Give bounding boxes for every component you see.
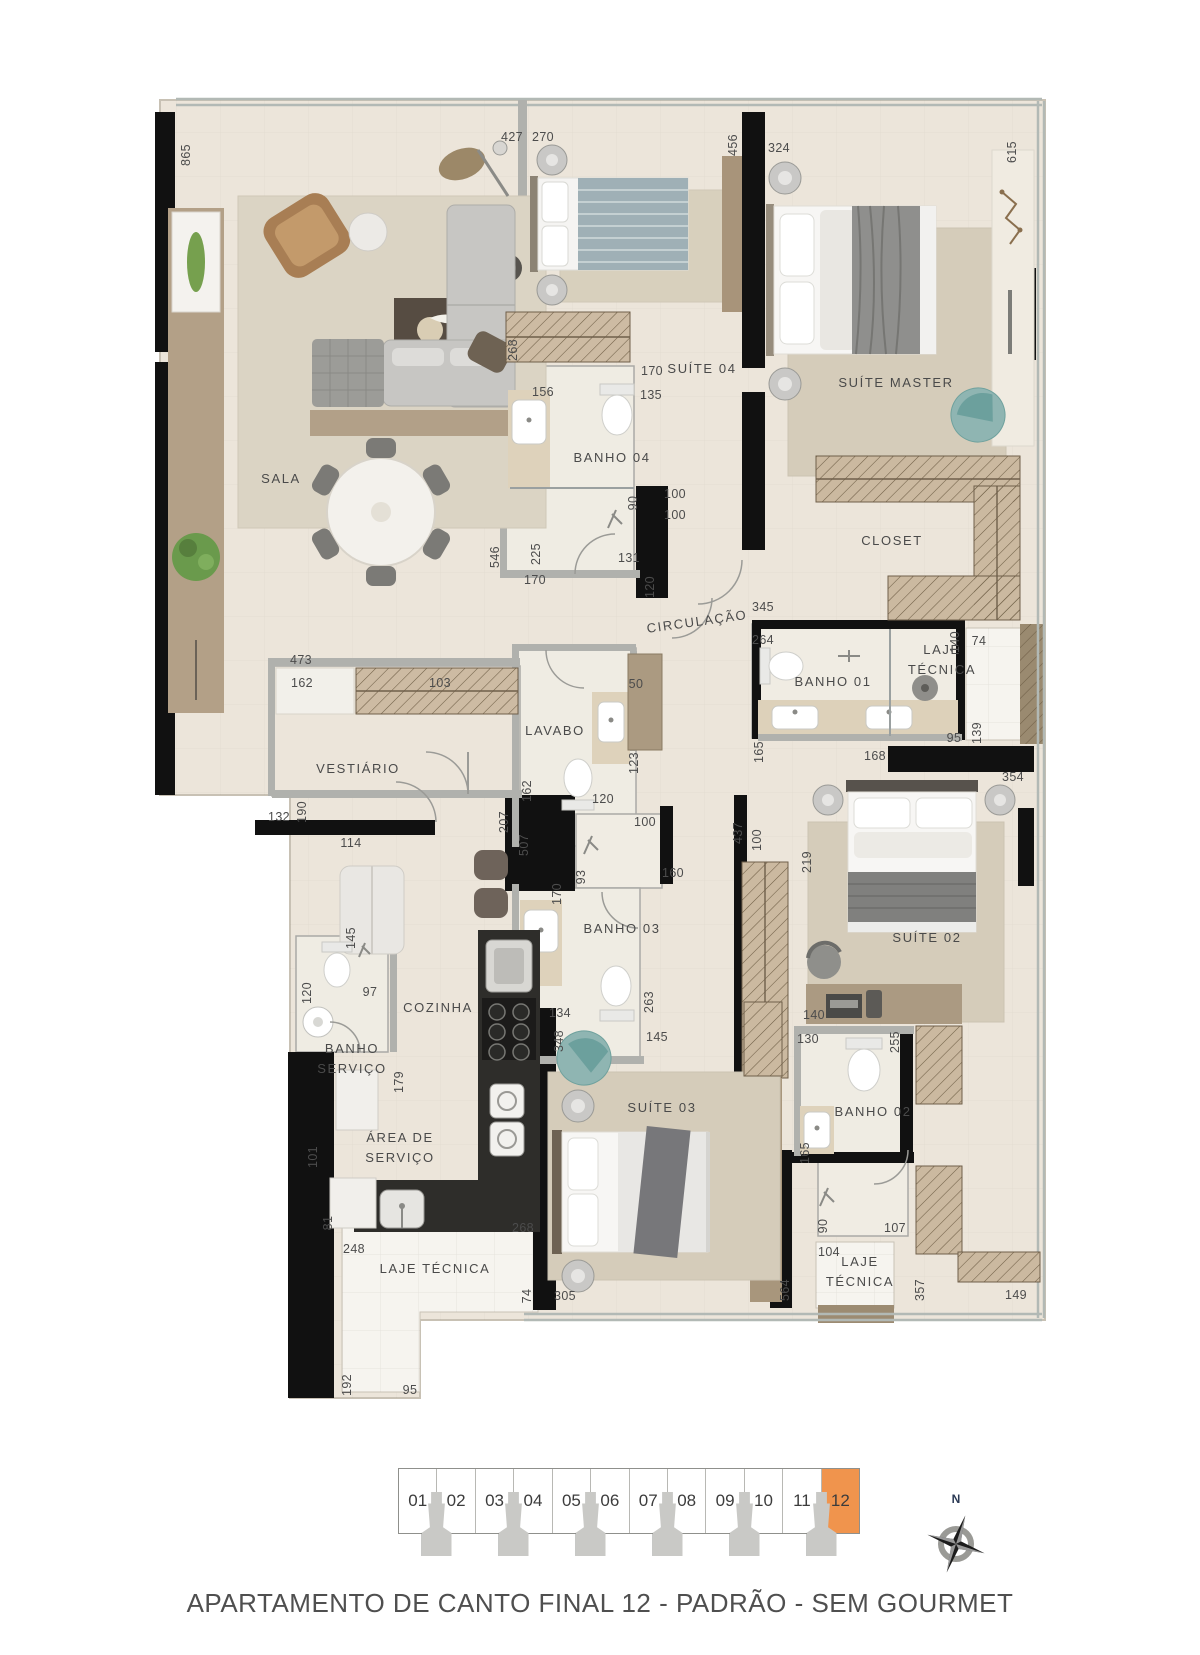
page-title: APARTAMENTO DE CANTO FINAL 12 - PADRÃO -…	[187, 1588, 1014, 1619]
unit-selector-strip: 010203040506070809101112	[398, 1468, 860, 1534]
unit-cell-03[interactable]: 03	[476, 1469, 514, 1533]
floor-plan-graphic	[0, 0, 1200, 1655]
unit-cell-01[interactable]: 01	[399, 1469, 437, 1533]
unit-cell-10[interactable]: 10	[745, 1469, 783, 1533]
unit-cell-09[interactable]: 09	[706, 1469, 744, 1533]
unit-cell-12[interactable]: 12	[822, 1469, 859, 1533]
unit-cell-06[interactable]: 06	[591, 1469, 629, 1533]
unit-cell-05[interactable]: 05	[553, 1469, 591, 1533]
compass-rose: N	[920, 1492, 992, 1582]
unit-cell-02[interactable]: 02	[437, 1469, 475, 1533]
unit-cell-11[interactable]: 11	[783, 1469, 821, 1533]
unit-cell-08[interactable]: 08	[668, 1469, 706, 1533]
compass-north-label: N	[952, 1492, 961, 1506]
floorplan-page: SALASUÍTE 04BANHO 04SUÍTE MASTERCLOSETCI…	[0, 0, 1200, 1655]
unit-cell-07[interactable]: 07	[630, 1469, 668, 1533]
unit-cell-04[interactable]: 04	[514, 1469, 552, 1533]
